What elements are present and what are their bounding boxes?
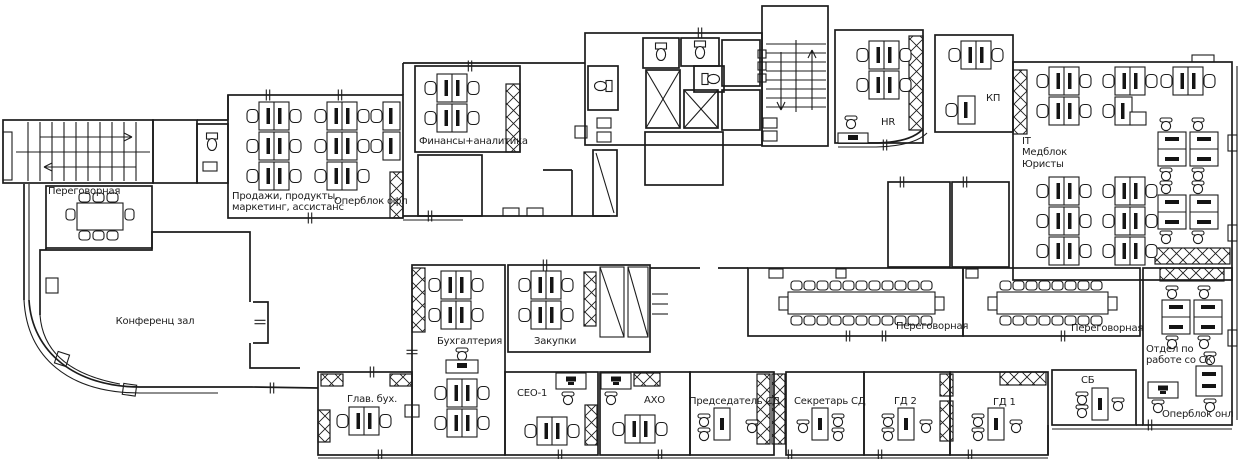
stairs-west-treads <box>16 122 150 181</box>
column-hatch <box>412 268 425 332</box>
conference-hall-walls <box>40 232 300 368</box>
column-hatch <box>585 405 597 445</box>
floor-plan-drawing <box>0 0 1239 459</box>
room-label-operblock-offline: Оперблок офл <box>334 196 407 207</box>
room-label-meeting-central: Переговорная <box>896 321 968 332</box>
staircase-north <box>762 6 828 146</box>
finance-room-desks <box>425 74 479 132</box>
room-label-procurement: Закупки <box>534 336 576 347</box>
room-label-accounting: Бухгалтерия <box>437 336 502 347</box>
procurement-desks <box>519 271 573 329</box>
column-hatch <box>321 374 343 386</box>
room-label-aho: АХО <box>644 395 665 406</box>
ceo1-desks <box>525 373 586 445</box>
room-label-ceo1: СЕО-1 <box>517 388 547 399</box>
secretary-desk <box>797 408 844 441</box>
column-hatch <box>1155 248 1230 264</box>
chairman-desk <box>698 408 758 441</box>
procurement-walls <box>508 265 650 352</box>
room-label-gd1: ГД 1 <box>993 397 1016 408</box>
column-hatch <box>634 373 660 386</box>
room-label-it-medblock: IT Медблок Юристы <box>1022 136 1067 170</box>
sales-room-desks <box>247 102 400 190</box>
column-hatch <box>1013 70 1027 134</box>
column-hatch <box>1160 268 1224 281</box>
room-label-kp: КП <box>986 93 1000 104</box>
gd2-desk <box>882 408 932 441</box>
meeting-table-top-left <box>66 193 134 240</box>
column-hatch <box>757 374 770 444</box>
column-hatch <box>390 172 403 218</box>
room-label-chairman: Председатель СД <box>689 396 780 407</box>
chief-accountant-desks <box>337 405 419 435</box>
room-label-chief-accountant: Глав. бух. <box>347 394 397 405</box>
meeting-table-east <box>988 281 1117 325</box>
column-hatch <box>1000 372 1046 385</box>
column-hatch <box>318 410 330 442</box>
floor-plan: Переговорная Конференц зал Продажи, прод… <box>0 0 1239 459</box>
room-label-secretary: Секретарь СД <box>794 396 865 407</box>
room-label-hr: HR <box>881 117 895 128</box>
sb-desk <box>1076 388 1124 420</box>
hr-room-desks <box>838 41 911 143</box>
gd1-desk <box>972 408 1022 441</box>
room-label-gd2: ГД 2 <box>894 396 917 407</box>
meeting-table-central <box>779 281 944 325</box>
room-label-sb: СБ <box>1081 375 1094 386</box>
column-hatch <box>772 374 785 444</box>
room-label-conference-hall: Конференц зал <box>95 316 215 327</box>
column-hatch <box>390 374 412 386</box>
column-hatch <box>940 401 953 441</box>
room-label-meeting-east: Переговорная <box>1071 323 1143 334</box>
elevator-2 <box>684 90 718 128</box>
room-label-sales: Продажи, продукты, маркетинг, ассистанс <box>232 191 344 214</box>
column-hatch <box>584 272 596 326</box>
room-label-insurance-dept: Отдел по работе со СК <box>1146 344 1212 367</box>
room-label-operblock-online: Оперблок онл <box>1162 409 1233 420</box>
kp-room-desks <box>946 41 1003 124</box>
elevator-1 <box>646 70 680 128</box>
room-label-finance: Финансы+аналитика <box>419 136 528 147</box>
accounting-desks <box>429 271 489 437</box>
stairs-north-treads <box>766 40 826 112</box>
room-label-meeting-top-left: Переговорная <box>48 186 120 197</box>
column-hatch <box>940 374 953 396</box>
